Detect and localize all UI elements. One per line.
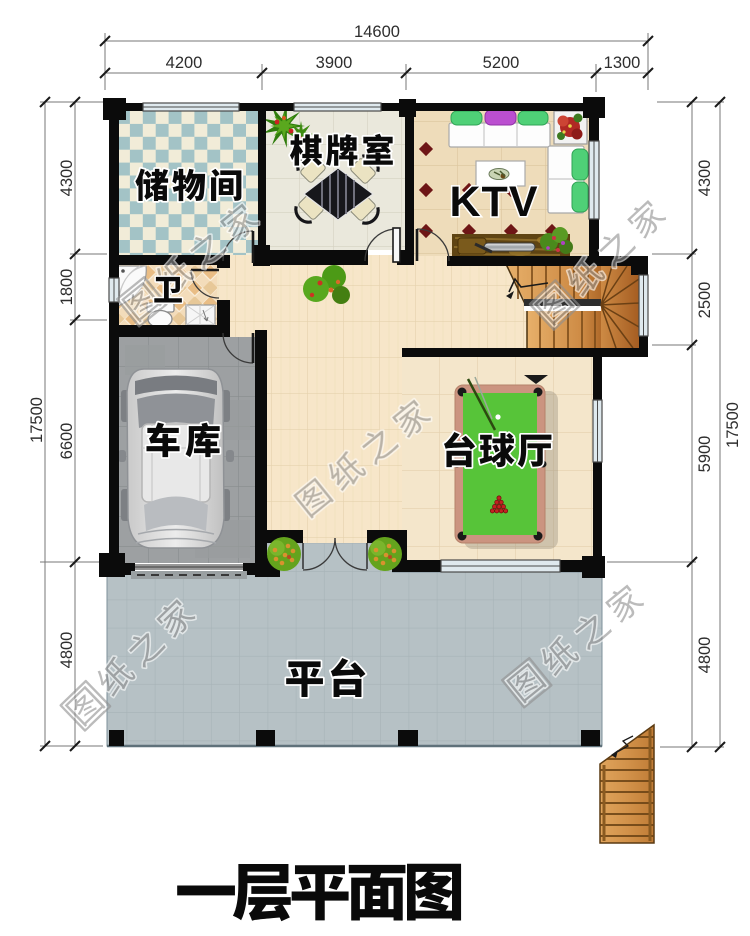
svg-text:1800: 1800 — [58, 269, 76, 306]
svg-text:4800: 4800 — [58, 632, 76, 669]
svg-text:17500: 17500 — [28, 397, 46, 443]
svg-text:4200: 4200 — [166, 54, 203, 72]
svg-text:5900: 5900 — [696, 436, 714, 473]
svg-text:4300: 4300 — [58, 160, 76, 197]
svg-text:4300: 4300 — [696, 160, 714, 197]
svg-text:3900: 3900 — [316, 54, 353, 72]
svg-text:KTV: KTV — [450, 178, 539, 226]
svg-text:5200: 5200 — [483, 54, 520, 72]
svg-text:17500: 17500 — [724, 402, 742, 448]
svg-text:1300: 1300 — [604, 54, 641, 72]
svg-text:14600: 14600 — [354, 23, 400, 41]
svg-text:6600: 6600 — [58, 423, 76, 460]
svg-text:4800: 4800 — [696, 637, 714, 674]
svg-text:2500: 2500 — [696, 282, 714, 319]
